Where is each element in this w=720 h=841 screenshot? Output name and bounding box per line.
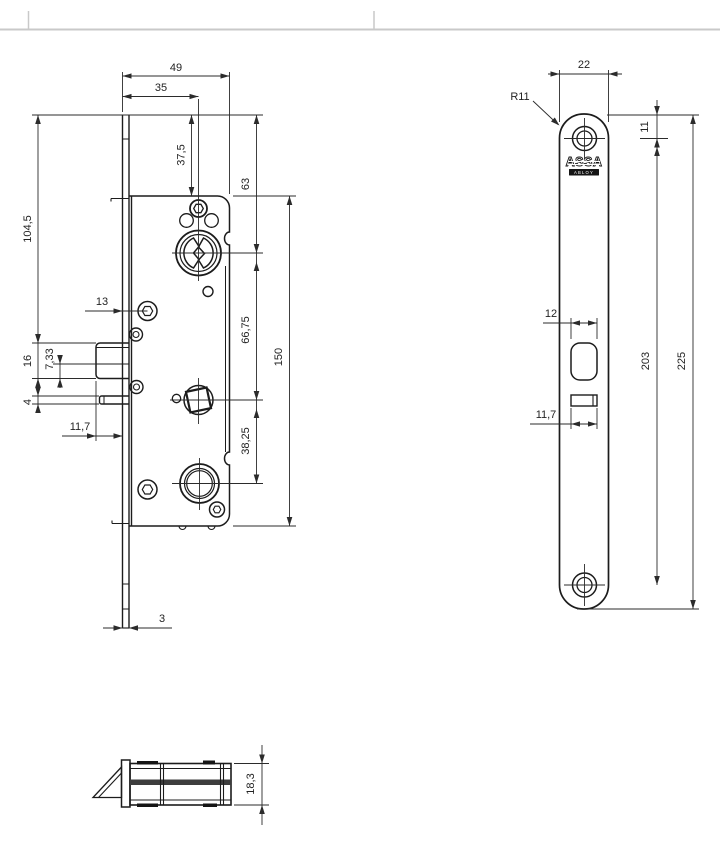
guide-holes [180,214,219,228]
logo-abloy: ABLOY [574,170,594,175]
dim-corner-radius-r11: R11 [510,91,559,126]
spindle-guide-hole [203,287,213,297]
top-view-case [130,761,231,808]
lock-technical-drawing: 49 35 37,5 63 66,75 [0,0,720,841]
dim-label-11-7: 11,7 [70,421,91,433]
dim-label-7-33: 7,33 [44,348,56,369]
dim-label-r11: R11 [510,91,529,103]
dim-label-150: 150 [273,348,285,366]
dim-plate-width-22: 22 [548,59,622,122]
case-tab [203,761,215,765]
dim-plate-length-225: 225 [577,115,699,609]
latch-bevel [93,767,122,798]
faceplate-profile [123,115,130,628]
dim-label-22: 22 [578,59,590,71]
dim-label-203: 203 [640,352,652,370]
case-tab [203,804,217,808]
dim-overall-depth-49: 49 [123,62,230,194]
dim-label-16: 16 [22,355,34,367]
case-tab [137,804,158,808]
dim-cylinder-to-follower-66-75: 66,75 [240,253,259,400]
pin-opening [571,395,597,406]
faceplate-front [560,114,609,609]
case-mid-band [130,780,231,786]
dim-top-to-screw-11: 11 [607,100,699,150]
latch-opening [571,343,597,380]
dim-label-13: 13 [96,296,108,308]
dim-latch-protrusion-11-7: 11,7 [62,381,123,441]
dim-label-63: 63 [240,178,252,190]
dim-label-12: 12 [545,308,557,320]
dim-latch-width-12: 12 [543,308,597,339]
dim-label-66-75: 66,75 [240,316,252,344]
dim-label-f11-7: 11,7 [536,409,557,421]
logo-assa: ASSA [566,155,603,169]
dim-backset-35: 35 [123,82,199,99]
follower-square [170,378,263,424]
deadlock-pin [100,396,130,404]
torx-screw-bottom-left [138,480,157,499]
dim-face-to-screw-13: 13 [85,296,148,314]
front-view: ASSA ABLOY 22 R [510,59,699,609]
page-rule [0,11,720,30]
dim-label-38-25: 38,25 [240,427,252,455]
dim-latch-step-7-33: 7,33 [44,348,96,388]
dim-label-225: 225 [676,352,688,370]
dim-label-4: 4 [22,399,34,405]
dim-latch-height-16: 16 [22,334,96,388]
dim-faceplate-thickness-3: 3 [103,613,172,631]
dim-label-18-3: 18,3 [245,773,257,794]
dim-label-49: 49 [170,62,182,74]
faceplate-edge [122,760,131,807]
dim-follower-to-cylinder-38-25: 38,25 [240,400,259,484]
dim-top-to-cylinder-63: 63 [240,115,259,253]
dim-label-11: 11 [639,121,651,132]
dim-label-37-5: 37,5 [176,144,188,165]
dim-label-3: 3 [159,613,165,625]
dim-screw-spacing-203: 203 [640,139,660,586]
dim-top-to-case-37-5: 37,5 [176,115,195,196]
latch-bolt [96,343,129,379]
side-view: 49 35 37,5 63 66,75 [22,62,296,631]
dim-case-thickness-18-3: 18,3 [234,745,269,825]
top-screw-hole [564,118,605,159]
case-tab [137,761,158,765]
bottom-screw-hole [564,564,605,606]
torx-screw-bottom-right [210,502,225,517]
dim-case-height-150: 150 [233,196,296,526]
drawing-page: 49 35 37,5 63 66,75 [0,0,720,841]
dim-pin-height-4: 4 [22,387,99,413]
dim-pin-width-11-7: 11,7 [530,408,597,429]
dim-label-104-5: 104,5 [22,215,34,243]
assa-abloy-logo: ASSA ABLOY [566,155,603,176]
dim-top-to-latch-104-5: 104,5 [22,115,96,343]
dim-label-35: 35 [155,82,167,94]
top-view: 18,3 [93,745,269,825]
